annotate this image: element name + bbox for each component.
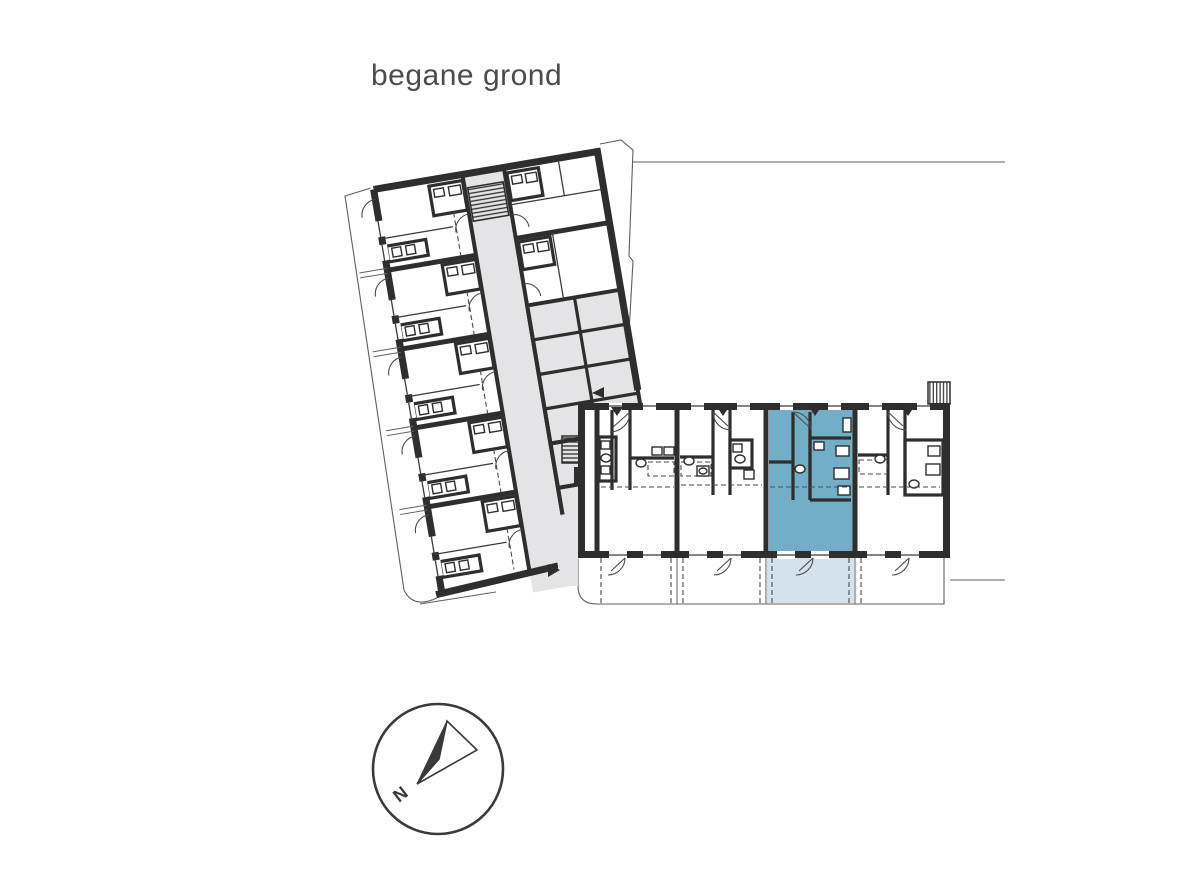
- staircase-upper: [468, 182, 509, 222]
- stair-stripe-block: [928, 382, 950, 404]
- compass: N: [373, 704, 503, 834]
- garden-outline-bottom: [420, 592, 496, 604]
- highlighted-unit-garden: [767, 558, 854, 603]
- terrace-outline: [578, 558, 944, 604]
- compass-needle-open: [417, 721, 477, 784]
- floorplan-drawing: N: [0, 0, 1181, 893]
- entrance-lobby: [558, 556, 578, 586]
- floorplan-page: begane grond: [0, 0, 1181, 893]
- compass-north-label: N: [389, 782, 412, 806]
- right-wing: [581, 382, 950, 604]
